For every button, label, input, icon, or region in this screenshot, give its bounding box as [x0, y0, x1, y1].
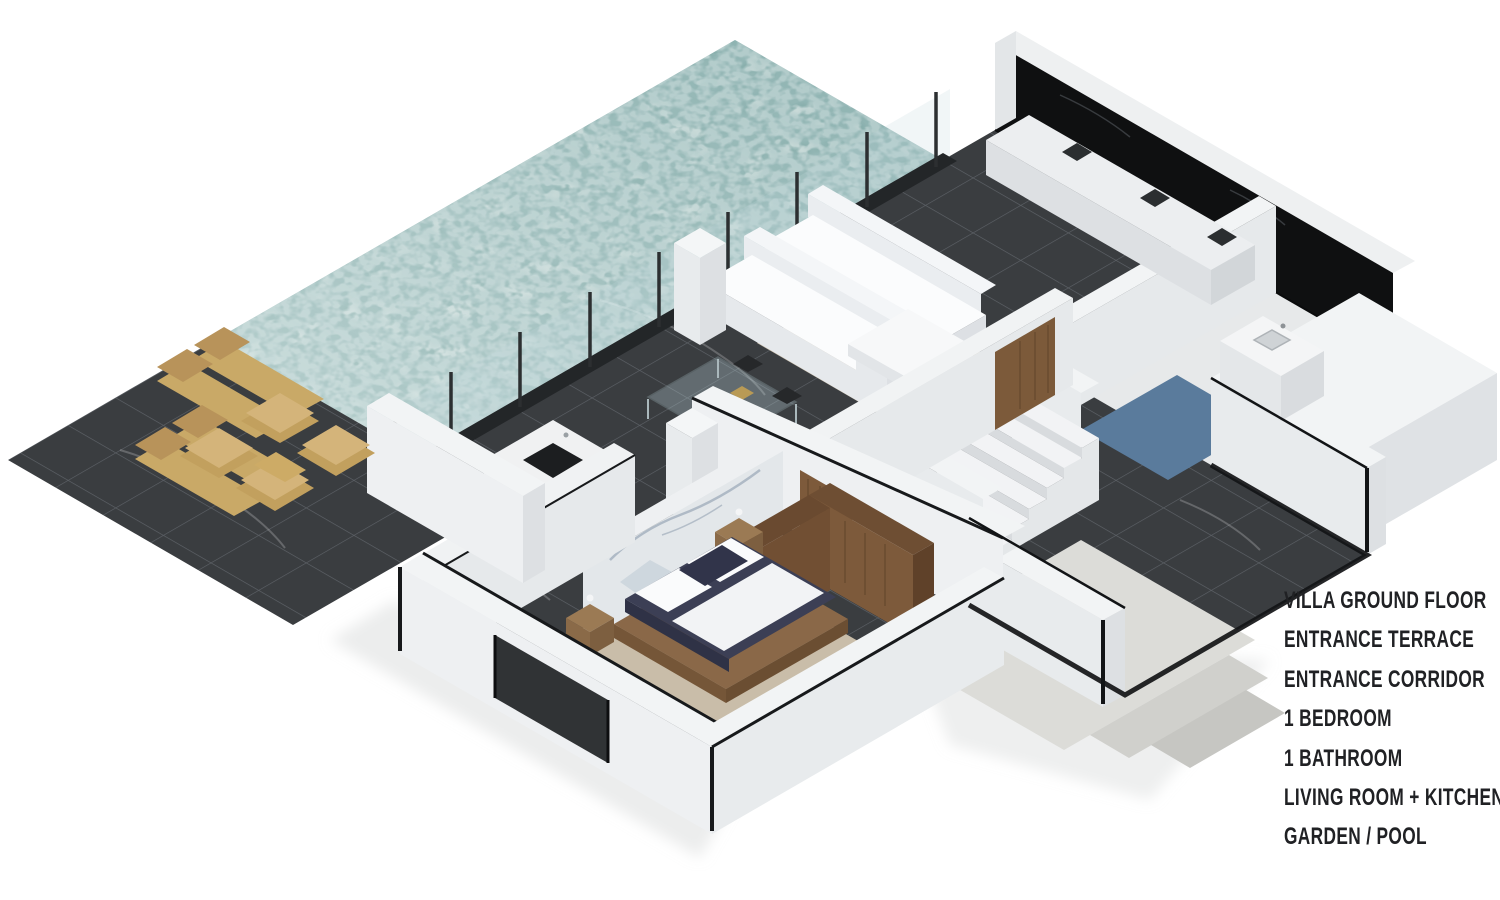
floor-plan-render	[0, 0, 1500, 900]
legend-line-title: VILLA GROUND FLOOR	[1284, 581, 1500, 620]
floor-plan-page: VILLA GROUND FLOOR ENTRANCE TERRACE ENTR…	[0, 0, 1500, 900]
legend-line-entrance-corridor: ENTRANCE CORRIDOR	[1284, 660, 1500, 699]
legend-line-garden-pool: GARDEN / POOL	[1284, 817, 1500, 856]
legend-line-entrance-terrace: ENTRANCE TERRACE	[1284, 620, 1500, 659]
legend-line-bathroom: 1 BATHROOM	[1284, 739, 1500, 778]
legend: VILLA GROUND FLOOR ENTRANCE TERRACE ENTR…	[1284, 581, 1500, 857]
legend-line-bedroom: 1 BEDROOM	[1284, 699, 1500, 738]
legend-line-living-kitchen: LIVING ROOM + KITCHEN	[1284, 778, 1500, 817]
